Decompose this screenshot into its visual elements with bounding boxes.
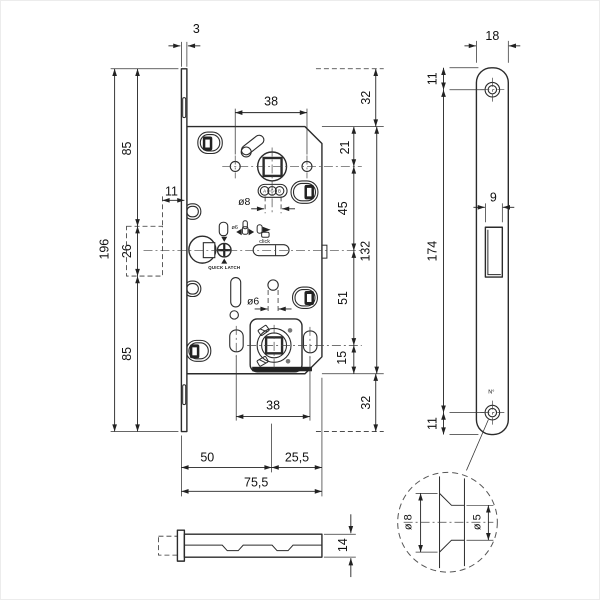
faceplate [181, 69, 186, 432]
strike-number-label: N° [488, 390, 494, 396]
side-faceplate [177, 530, 184, 561]
svg-text:38: 38 [264, 95, 278, 109]
dim-offset-bottom: 32 [359, 374, 376, 432]
svg-text:174: 174 [426, 241, 440, 262]
dim-26: 26 [120, 226, 137, 276]
dim-21: 21 [338, 127, 354, 167]
svg-text:15: 15 [335, 351, 349, 365]
dim-85-bottom: 85 [120, 276, 137, 431]
svg-text:ø 5: ø 5 [471, 514, 483, 530]
svg-text:38: 38 [266, 399, 280, 413]
svg-text:11: 11 [426, 417, 440, 430]
mortise-pocket-dashed [127, 196, 163, 276]
svg-text:3: 3 [193, 22, 200, 36]
dim-51: 51 [336, 251, 354, 346]
svg-text:45: 45 [336, 201, 350, 215]
dim-offset-top: 32 [359, 69, 376, 127]
svg-text:14: 14 [336, 538, 350, 552]
quick-latch-label: QUICK LATCH [208, 265, 240, 270]
dim-45: 45 [336, 166, 354, 250]
strike-latch-hole [485, 227, 502, 277]
svg-text:25,5: 25,5 [285, 450, 309, 464]
lock-technical-drawing: A G B ø6 click [0, 0, 600, 600]
dim-strike-holes-span: 174 [426, 90, 444, 413]
lock-body-view: A G B ø6 click [144, 69, 362, 432]
dim-side-thickness: 14 [324, 514, 356, 577]
svg-text:32: 32 [359, 396, 373, 410]
svg-text:196: 196 [98, 239, 112, 260]
svg-text:ø8: ø8 [238, 197, 250, 208]
rivet-dot [286, 359, 291, 364]
strike-plate-view: N° 18 11 174 11 [426, 29, 521, 435]
dim-strike-width: 18 [464, 29, 520, 63]
svg-text:11: 11 [426, 72, 440, 85]
drawing-canvas: A G B ø6 click [1, 1, 599, 599]
svg-text:18: 18 [485, 29, 499, 43]
svg-text:ø6: ø6 [247, 296, 259, 307]
magnet-strip [252, 367, 312, 371]
countersink-detail-view: ø 8 ø 5 [398, 420, 498, 572]
svg-text:21: 21 [338, 141, 352, 155]
rivet-dot [288, 328, 293, 333]
svg-text:51: 51 [336, 291, 350, 305]
svg-text:9: 9 [490, 190, 497, 204]
svg-text:26: 26 [120, 244, 134, 258]
dim-strike-top-offset: 11 [426, 68, 485, 90]
logo-letter-a: A [263, 188, 266, 193]
lock-side-view: 14 [158, 514, 355, 577]
svg-text:85: 85 [120, 347, 134, 361]
svg-text:132: 132 [358, 241, 372, 262]
dim-countersink-dia: ø 8 [403, 493, 438, 552]
svg-text:50: 50 [200, 450, 214, 464]
dim-body-height: 132 [358, 127, 376, 374]
logo-letter-b: B [278, 188, 281, 193]
svg-text:85: 85 [120, 142, 134, 156]
latch-icon-dia-label: ø6 [232, 225, 238, 231]
svg-text:32: 32 [359, 91, 373, 105]
dim-faceplate-thickness: 3 [168, 22, 200, 67]
dim-back-width: 25,5 [272, 450, 322, 467]
dim-strike-bottom-offset: 11 [426, 413, 485, 435]
svg-text:11: 11 [165, 184, 178, 198]
latch-follower [189, 236, 216, 263]
svg-text:ø 8: ø 8 [403, 514, 415, 530]
right-edge-tab [322, 245, 327, 258]
svg-text:75,5: 75,5 [244, 475, 268, 489]
detail-leader-line [466, 420, 488, 471]
dim-85-top: 85 [120, 69, 137, 226]
dim-total-depth: 75,5 [181, 475, 322, 491]
dim-15: 15 [335, 345, 354, 373]
dim-hole-dia: ø 5 [466, 505, 493, 540]
dim-faceplate-height: 196 [98, 69, 115, 432]
